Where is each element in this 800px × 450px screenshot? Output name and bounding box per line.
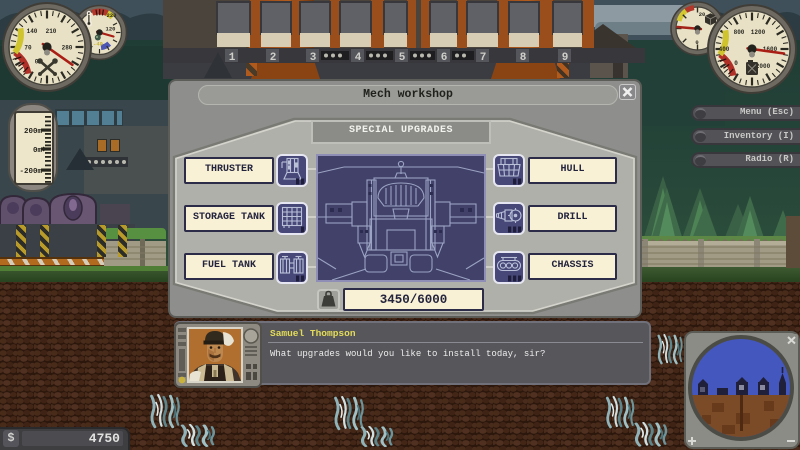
- svg-text:210: 210: [46, 28, 57, 35]
- svg-text:5: 5: [399, 52, 406, 64]
- svg-text:2: 2: [270, 52, 277, 64]
- svg-text:200m: 200m: [24, 128, 43, 136]
- svg-text:4: 4: [355, 52, 362, 64]
- svg-text:400: 400: [719, 46, 730, 53]
- svg-text:6: 6: [441, 52, 448, 64]
- svg-text:7: 7: [480, 52, 487, 64]
- svg-text:20: 20: [699, 11, 706, 18]
- svg-text:220: 220: [107, 12, 117, 19]
- svg-text:8: 8: [520, 52, 527, 64]
- svg-text:3: 3: [310, 52, 317, 64]
- svg-text:800: 800: [734, 29, 745, 36]
- svg-text:2000: 2000: [756, 63, 771, 70]
- svg-text:9: 9: [562, 52, 569, 64]
- svg-text:140: 140: [27, 28, 38, 35]
- svg-text:1200: 1200: [751, 29, 766, 36]
- svg-text:0: 0: [695, 39, 698, 46]
- svg-text:120: 120: [106, 26, 116, 33]
- svg-text:0: 0: [734, 60, 738, 67]
- svg-text:280: 280: [62, 45, 73, 52]
- svg-text:70: 70: [24, 45, 32, 52]
- svg-text:-200m: -200m: [19, 168, 42, 176]
